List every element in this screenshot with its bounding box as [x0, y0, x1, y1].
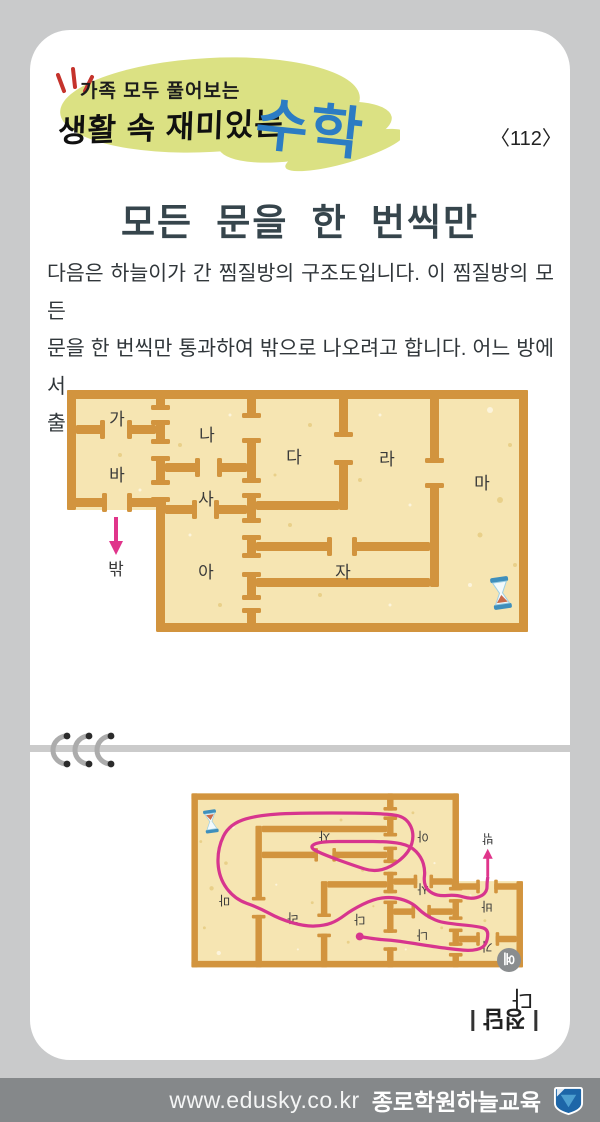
room-label: 사	[198, 490, 214, 509]
floor-speckle	[217, 951, 221, 955]
wall-segment	[332, 852, 387, 858]
wall-segment	[339, 460, 348, 510]
room-label: 라	[379, 450, 395, 469]
floor-speckle	[118, 453, 122, 457]
floor-speckle	[347, 941, 350, 944]
door-jamb	[317, 934, 331, 938]
footer-logo-icon	[553, 1085, 584, 1116]
wall-segment	[430, 483, 439, 587]
door-jamb	[383, 901, 397, 905]
door-jamb	[242, 438, 261, 443]
door-jamb	[383, 890, 397, 894]
door-jamb	[383, 807, 397, 811]
answer-label-bar	[534, 1011, 537, 1032]
wall-segment	[165, 463, 200, 472]
door-jamb	[252, 897, 266, 901]
floor-speckle	[389, 604, 392, 607]
door-jamb	[242, 413, 261, 418]
wall-segment	[339, 390, 348, 437]
door-jamb	[476, 932, 480, 946]
wall-segment	[191, 793, 197, 967]
door-jamb	[151, 439, 170, 444]
wall-segment	[157, 623, 528, 632]
wall-segment	[387, 901, 393, 933]
floor-speckle	[318, 593, 322, 597]
floor-speckle	[433, 862, 435, 864]
page-number: 〈112〉	[490, 122, 562, 151]
door-jamb	[242, 478, 261, 483]
wall-segment	[519, 390, 528, 632]
door-jamb	[151, 405, 170, 410]
door-jamb	[242, 595, 261, 600]
door-jamb	[242, 608, 261, 613]
exit-label: 밖	[482, 831, 493, 845]
solution-start-dot	[356, 933, 364, 941]
door-jamb	[151, 497, 170, 502]
room-label: 나	[417, 928, 428, 942]
floor-speckle	[297, 948, 299, 950]
door-jamb	[425, 483, 444, 488]
door-jamb	[317, 913, 331, 917]
door-jamb	[242, 535, 261, 540]
wall-segment	[494, 883, 523, 889]
door-jamb	[449, 887, 463, 891]
floor-speckle	[275, 884, 277, 886]
wall-segment	[255, 915, 261, 967]
door-jamb	[449, 929, 463, 933]
floor-speckle	[203, 926, 206, 929]
exit-arrow	[483, 849, 493, 876]
floor-speckle	[372, 905, 374, 907]
answer-label-bar	[471, 1011, 474, 1032]
answer-marker-badge: 예	[497, 948, 521, 972]
floor-speckle	[469, 894, 471, 896]
floor-speckle	[379, 414, 382, 417]
floor-speckle	[224, 861, 228, 865]
floor-speckle	[513, 563, 517, 567]
answer-label: 정답	[471, 1004, 537, 1038]
door-jamb	[334, 460, 353, 465]
door-jamb	[334, 432, 353, 437]
door-jamb	[214, 500, 219, 519]
floor-speckle	[209, 886, 213, 890]
door-jamb	[242, 572, 261, 577]
floor-speckle	[199, 840, 202, 843]
door-jamb	[414, 875, 418, 889]
wall-segment	[191, 961, 523, 967]
door-jamb	[449, 942, 463, 946]
wall-segment	[67, 498, 107, 507]
door-jamb	[217, 458, 222, 477]
room-label: 마	[474, 474, 490, 493]
wall-segment	[327, 881, 387, 887]
wall-segment	[427, 908, 452, 914]
brand-subject-mark: 수학	[252, 79, 369, 172]
door-jamb	[383, 816, 397, 820]
door-jamb	[242, 493, 261, 498]
door-jamb	[383, 947, 397, 951]
room-label: 다	[354, 912, 365, 926]
door-jamb	[151, 420, 170, 425]
wall-segment	[256, 501, 339, 510]
door-jamb	[383, 872, 397, 876]
door-jamb	[383, 833, 397, 837]
wall-segment	[67, 390, 76, 510]
floor-speckle	[487, 407, 493, 413]
floor-speckle	[139, 489, 142, 492]
door-jamb	[127, 493, 132, 512]
floor-speckle	[440, 926, 443, 929]
wall-segment	[430, 390, 439, 463]
spiral-rings-icon	[40, 722, 130, 778]
wall-segment	[321, 934, 327, 968]
exit-arrow	[109, 517, 123, 555]
door-jamb	[383, 847, 397, 851]
floor-speckle	[311, 901, 314, 904]
room-label: 나	[199, 426, 215, 445]
answer-floorplan: 가나다라마바사아자 밖	[190, 784, 528, 971]
wall-segment	[256, 542, 332, 551]
door-jamb	[100, 420, 105, 439]
wall-segment	[156, 498, 165, 632]
floor-speckle	[411, 811, 414, 814]
wall-segment	[191, 793, 458, 799]
floor-speckle	[478, 533, 483, 538]
exit-label: 밖	[108, 560, 124, 579]
answer-label-text: 정답	[483, 1004, 525, 1038]
door-jamb	[383, 929, 397, 933]
footer-bar: www.edusky.co.kr 종로학원하늘교육	[0, 1078, 600, 1122]
floor-speckle	[405, 948, 407, 950]
room-label: 가	[109, 410, 125, 429]
door-jamb	[102, 493, 107, 512]
floor-speckle	[497, 497, 503, 503]
floor-speckle	[274, 474, 277, 477]
room-label: 바	[481, 899, 492, 913]
floor-speckle	[178, 443, 182, 447]
floor-speckle	[189, 534, 192, 537]
wall-segment	[321, 881, 327, 917]
door-jamb	[327, 537, 332, 556]
door-jamb	[449, 953, 463, 957]
floor-speckle	[218, 603, 222, 607]
floor-speckle	[229, 414, 232, 417]
floor-speckle	[468, 583, 472, 587]
door-jamb	[449, 899, 463, 903]
page-background: 가족 모두 풀어보는 생활 속 재미있는 수학 〈112〉 모든 문을 한 번씩…	[0, 0, 600, 1122]
room-label: 아	[417, 829, 428, 843]
door-jamb	[242, 553, 261, 558]
door-jamb	[429, 875, 433, 889]
door-jamb	[195, 458, 200, 477]
floor-speckle	[308, 423, 312, 427]
floor-speckle	[358, 478, 362, 482]
floor-speckle	[508, 443, 512, 447]
wall-segment	[255, 826, 261, 901]
brand-series-title: 생활 속 재미있는	[57, 98, 284, 151]
door-jamb	[449, 916, 463, 920]
door-jamb	[425, 458, 444, 463]
room-label: 바	[109, 466, 125, 485]
wall-segment	[452, 793, 458, 889]
footer-brand: 종로학원하늘교육	[372, 1083, 541, 1117]
door-jamb	[494, 880, 498, 894]
door-jamb	[242, 518, 261, 523]
floor-speckle	[288, 523, 292, 527]
puzzle-title: 모든 문을 한 번씩만	[0, 192, 600, 246]
door-jamb	[252, 915, 266, 919]
brand-tagline: 가족 모두 풀어보는	[80, 76, 240, 103]
door-jamb	[151, 480, 170, 485]
floor-speckle	[340, 819, 343, 822]
room-label: 다	[286, 448, 302, 467]
door-jamb	[352, 537, 357, 556]
floor-speckle	[483, 919, 486, 922]
wall-segment	[352, 542, 430, 551]
floor-speckle	[409, 504, 412, 507]
wall-segment	[67, 390, 528, 399]
door-jamb	[496, 932, 500, 946]
door-jamb	[127, 420, 132, 439]
door-jamb	[476, 880, 480, 894]
door-jamb	[192, 500, 197, 519]
door-jamb	[151, 456, 170, 461]
room-label: 아	[198, 563, 214, 582]
wall-segment	[247, 438, 256, 483]
room-label: 자	[335, 563, 351, 582]
problem-floorplan: 가나다라마바사아자 밖	[60, 385, 530, 645]
instruction-line: 다음은 하늘이가 간 찜질방의 구조도입니다. 이 찜질방의 모든	[47, 255, 554, 330]
room-label: 마	[219, 893, 230, 907]
footer-url: www.edusky.co.kr	[169, 1087, 359, 1114]
wall-segment	[262, 852, 318, 858]
